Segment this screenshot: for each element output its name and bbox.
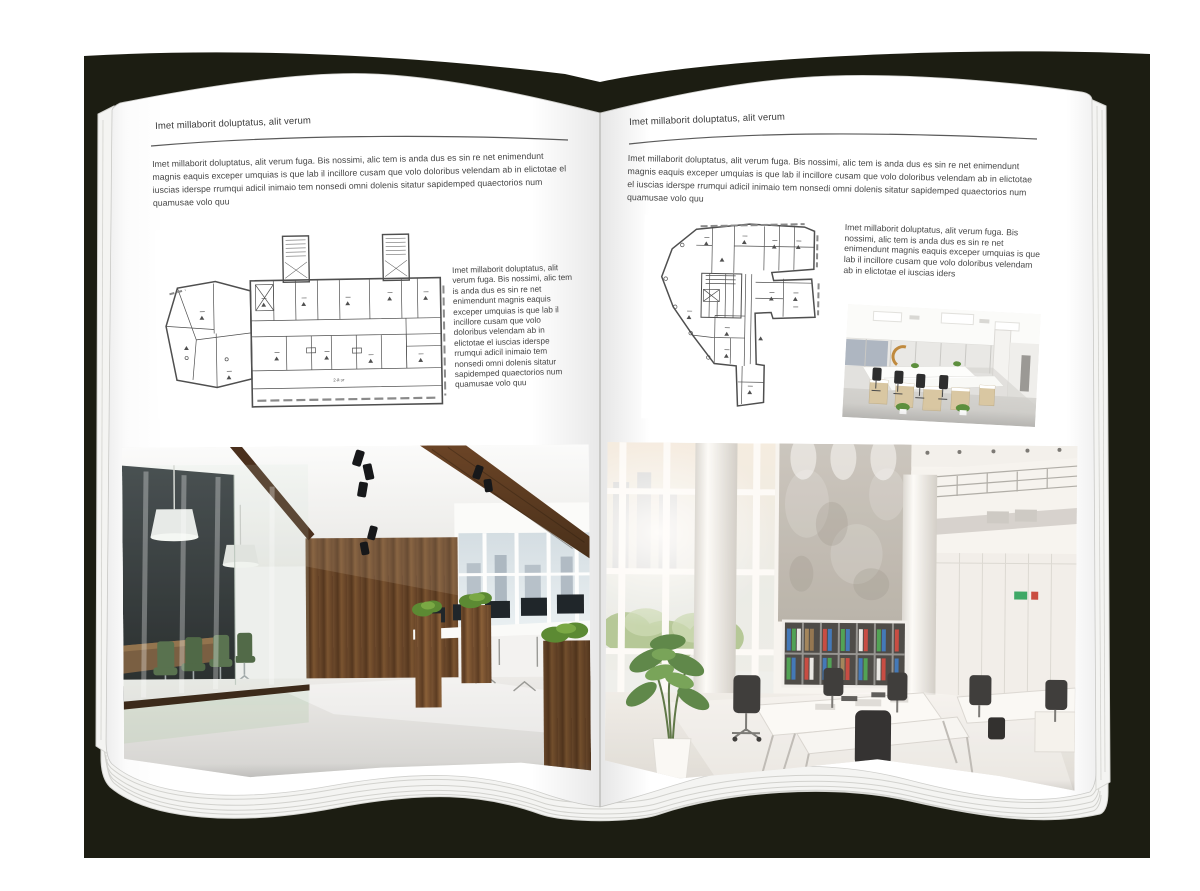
office-small-illustration xyxy=(842,304,1041,427)
right-header-rule xyxy=(627,130,1039,148)
right-page-caption: Imet millaborit doluptatus, alit verum f… xyxy=(843,222,1042,282)
left-page-caption: Imet millaborit doluptatus, alit verum f… xyxy=(452,263,576,391)
left-header-rule xyxy=(150,134,570,150)
office-atrium-illustration xyxy=(604,442,1077,794)
left-office-photo xyxy=(122,444,591,778)
left-page-intro: Imet millaborit doluptatus, alit verum f… xyxy=(152,149,571,210)
right-page-intro: Imet millaborit doluptatus, alit verum f… xyxy=(627,152,1038,213)
magazine-spread-mockup: Imet millaborit doluptatus, alit verum I… xyxy=(0,0,1200,891)
floor-plan-level-label: 2-й эт xyxy=(333,377,344,382)
left-floor-plan: 2-й эт xyxy=(154,225,449,418)
right-floor-plan xyxy=(641,214,843,421)
right-office-photo xyxy=(604,442,1077,794)
right-small-office-photo xyxy=(842,304,1041,427)
office-wood-glass-illustration xyxy=(122,444,591,778)
